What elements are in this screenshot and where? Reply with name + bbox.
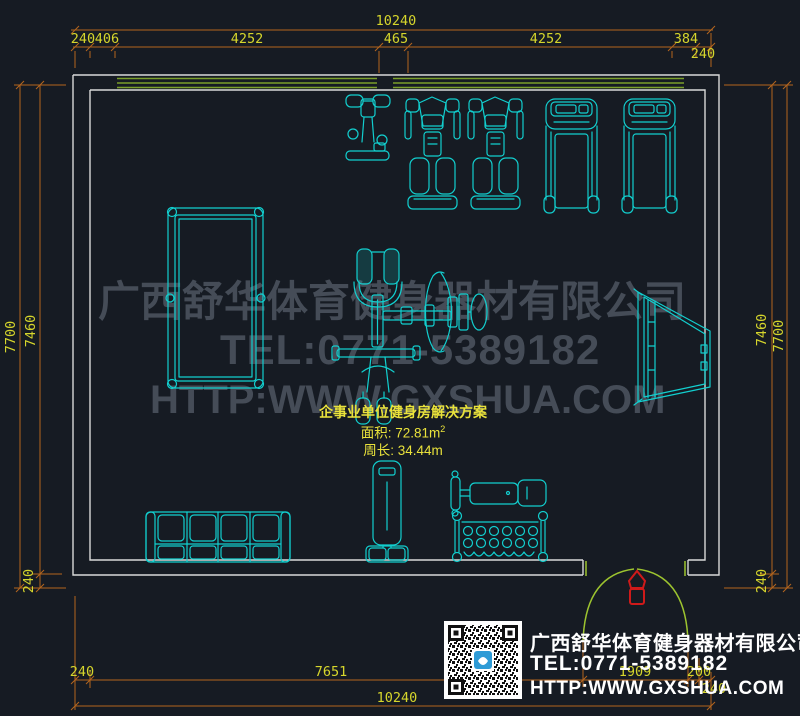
wall-mounted-trainer — [634, 289, 710, 405]
treadmill-2 — [622, 99, 677, 213]
wall-outer — [73, 75, 719, 575]
dim-text: 7651 — [315, 664, 348, 680]
cad-viewport[interactable]: 广西舒华体育健身器材有限公司 TEL:0771-5389182 HTTP:WWW… — [0, 0, 800, 716]
dim-text: 7700 — [3, 321, 19, 354]
floor-plan-drawing: 10240 240 406 4252 465 4252 384 240 7700… — [0, 0, 800, 716]
dim-text: 4252 — [231, 31, 264, 47]
billiard-table — [166, 208, 265, 389]
equipment-layer — [146, 95, 710, 562]
qr-code — [444, 621, 522, 699]
dim-text: 240 — [70, 664, 94, 680]
treadmill-1 — [544, 99, 599, 213]
qr-center-logo-icon — [472, 649, 494, 671]
boxing-bag-stand — [366, 461, 408, 562]
dim-text: 240 — [754, 569, 770, 593]
upright-exercise-bike — [346, 95, 390, 160]
dim-text: 7460 — [754, 314, 770, 347]
dim-text: 10240 — [377, 690, 418, 706]
strength-machine-1 — [405, 97, 460, 209]
walls — [73, 75, 719, 575]
dim-text: 240 — [691, 46, 715, 62]
dim-text: 240 — [21, 569, 37, 593]
flat-bench — [451, 471, 546, 516]
dumbbell-rack — [453, 512, 548, 562]
four-seat-sofa — [146, 512, 290, 562]
dim-text: 240 — [71, 31, 95, 47]
dimension-lines — [14, 26, 793, 710]
dimension-texts: 10240 240 406 4252 465 4252 384 240 7700… — [3, 13, 787, 706]
dim-text: 465 — [384, 31, 408, 47]
multi-station-gym — [332, 249, 487, 424]
footer-url: HTTP:WWW.GXSHUA.COM — [530, 678, 784, 700]
plan-perimeter: 周长: 34.44m — [278, 442, 528, 459]
dim-text: 406 — [95, 31, 119, 47]
dim-text: 4252 — [530, 31, 563, 47]
strength-machine-2 — [468, 97, 523, 209]
plan-info-block: 企事业单位健身房解决方案 面积: 72.81m2 周长: 34.44m — [278, 404, 528, 459]
door-marker-icon — [629, 571, 645, 604]
dim-text: 10240 — [376, 13, 417, 29]
dim-text: 384 — [674, 31, 698, 47]
plan-title: 企事业单位健身房解决方案 — [278, 404, 528, 421]
dim-text: 7700 — [771, 320, 787, 353]
footer-tel: TEL:0771-5389182 — [530, 652, 728, 676]
dim-text: 7460 — [23, 315, 39, 348]
wall-inner — [90, 90, 705, 560]
wall-hatch — [117, 79, 684, 88]
plan-area: 面积: 72.81m2 — [278, 421, 528, 442]
